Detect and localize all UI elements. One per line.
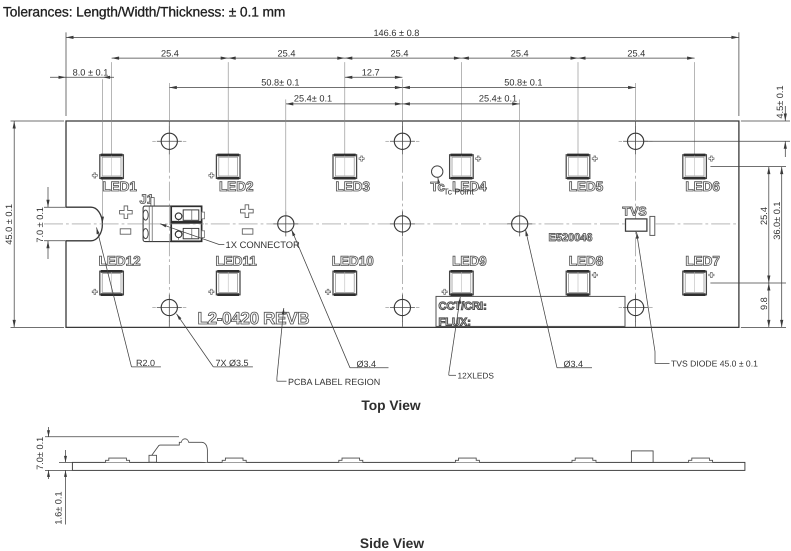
svg-text:25.4± 0.1: 25.4± 0.1 xyxy=(479,93,517,103)
svg-text:45.0 ± 0.1: 45.0 ± 0.1 xyxy=(4,204,14,245)
svg-text:7X Ø3.5: 7X Ø3.5 xyxy=(216,358,249,368)
svg-text:12XLEDS: 12XLEDS xyxy=(458,370,495,380)
svg-text:7.0± 0.1: 7.0± 0.1 xyxy=(35,437,45,470)
svg-text:E520046: E520046 xyxy=(549,232,593,244)
svg-text:Top View: Top View xyxy=(361,398,421,413)
svg-text:Side View: Side View xyxy=(360,536,424,551)
svg-text:PCBA LABEL REGION: PCBA LABEL REGION xyxy=(288,377,380,387)
svg-text:TVS DIODE 45.0 ± 0.1: TVS DIODE 45.0 ± 0.1 xyxy=(671,359,758,369)
svg-text:FLUX:: FLUX: xyxy=(439,317,471,329)
svg-text:Ø3.4: Ø3.4 xyxy=(357,359,377,369)
svg-text:CCT/CRI:: CCT/CRI: xyxy=(439,301,487,313)
svg-text:36.0± 0.1: 36.0± 0.1 xyxy=(772,201,782,239)
svg-text:25.4: 25.4 xyxy=(511,49,529,59)
svg-text:1X CONNECTOR: 1X CONNECTOR xyxy=(226,239,301,250)
svg-text:50.8± 0.1: 50.8± 0.1 xyxy=(261,78,299,88)
svg-text:Ø3.4: Ø3.4 xyxy=(564,359,584,369)
svg-text:25.4: 25.4 xyxy=(627,49,645,59)
svg-text:25.4: 25.4 xyxy=(759,207,769,225)
svg-text:LED9: LED9 xyxy=(452,254,487,269)
svg-text:7.0 ± 0.1: 7.0 ± 0.1 xyxy=(35,207,45,243)
svg-text:8.0 ± 0.1: 8.0 ± 0.1 xyxy=(73,68,109,78)
svg-text:LED7: LED7 xyxy=(685,254,720,269)
svg-text:25.4: 25.4 xyxy=(391,49,409,59)
svg-text:LED8: LED8 xyxy=(569,254,604,269)
svg-text:50.8± 0.1: 50.8± 0.1 xyxy=(504,78,542,88)
svg-text:LED6: LED6 xyxy=(685,179,720,194)
svg-text:25.4: 25.4 xyxy=(278,49,296,59)
svg-text:4.5± 0.1: 4.5± 0.1 xyxy=(775,85,785,118)
svg-text:12.7: 12.7 xyxy=(362,68,380,78)
svg-text:1.6± 0.1: 1.6± 0.1 xyxy=(54,491,64,524)
svg-text:25.4: 25.4 xyxy=(161,49,179,59)
svg-text:25.4± 0.1: 25.4± 0.1 xyxy=(294,93,332,103)
svg-text:L2-0420 REVB: L2-0420 REVB xyxy=(198,309,310,328)
svg-text:LED1: LED1 xyxy=(102,179,137,194)
svg-text:TVS: TVS xyxy=(622,205,646,219)
svg-text:146.6 ± 0.8: 146.6 ± 0.8 xyxy=(373,28,419,38)
svg-text:9.8: 9.8 xyxy=(759,297,769,310)
svg-text:LED10: LED10 xyxy=(332,254,374,269)
svg-text:Tolerances: Length/Width/Thick: Tolerances: Length/Width/Thickness: ± 0.… xyxy=(3,5,285,20)
svg-text:R2.0: R2.0 xyxy=(136,358,155,368)
svg-text:LED5: LED5 xyxy=(569,179,604,194)
svg-text:LED11: LED11 xyxy=(216,254,258,269)
svg-text:LED2: LED2 xyxy=(219,179,254,194)
svg-text:LED3: LED3 xyxy=(336,179,371,194)
svg-text:Tc Point: Tc Point xyxy=(444,187,475,197)
